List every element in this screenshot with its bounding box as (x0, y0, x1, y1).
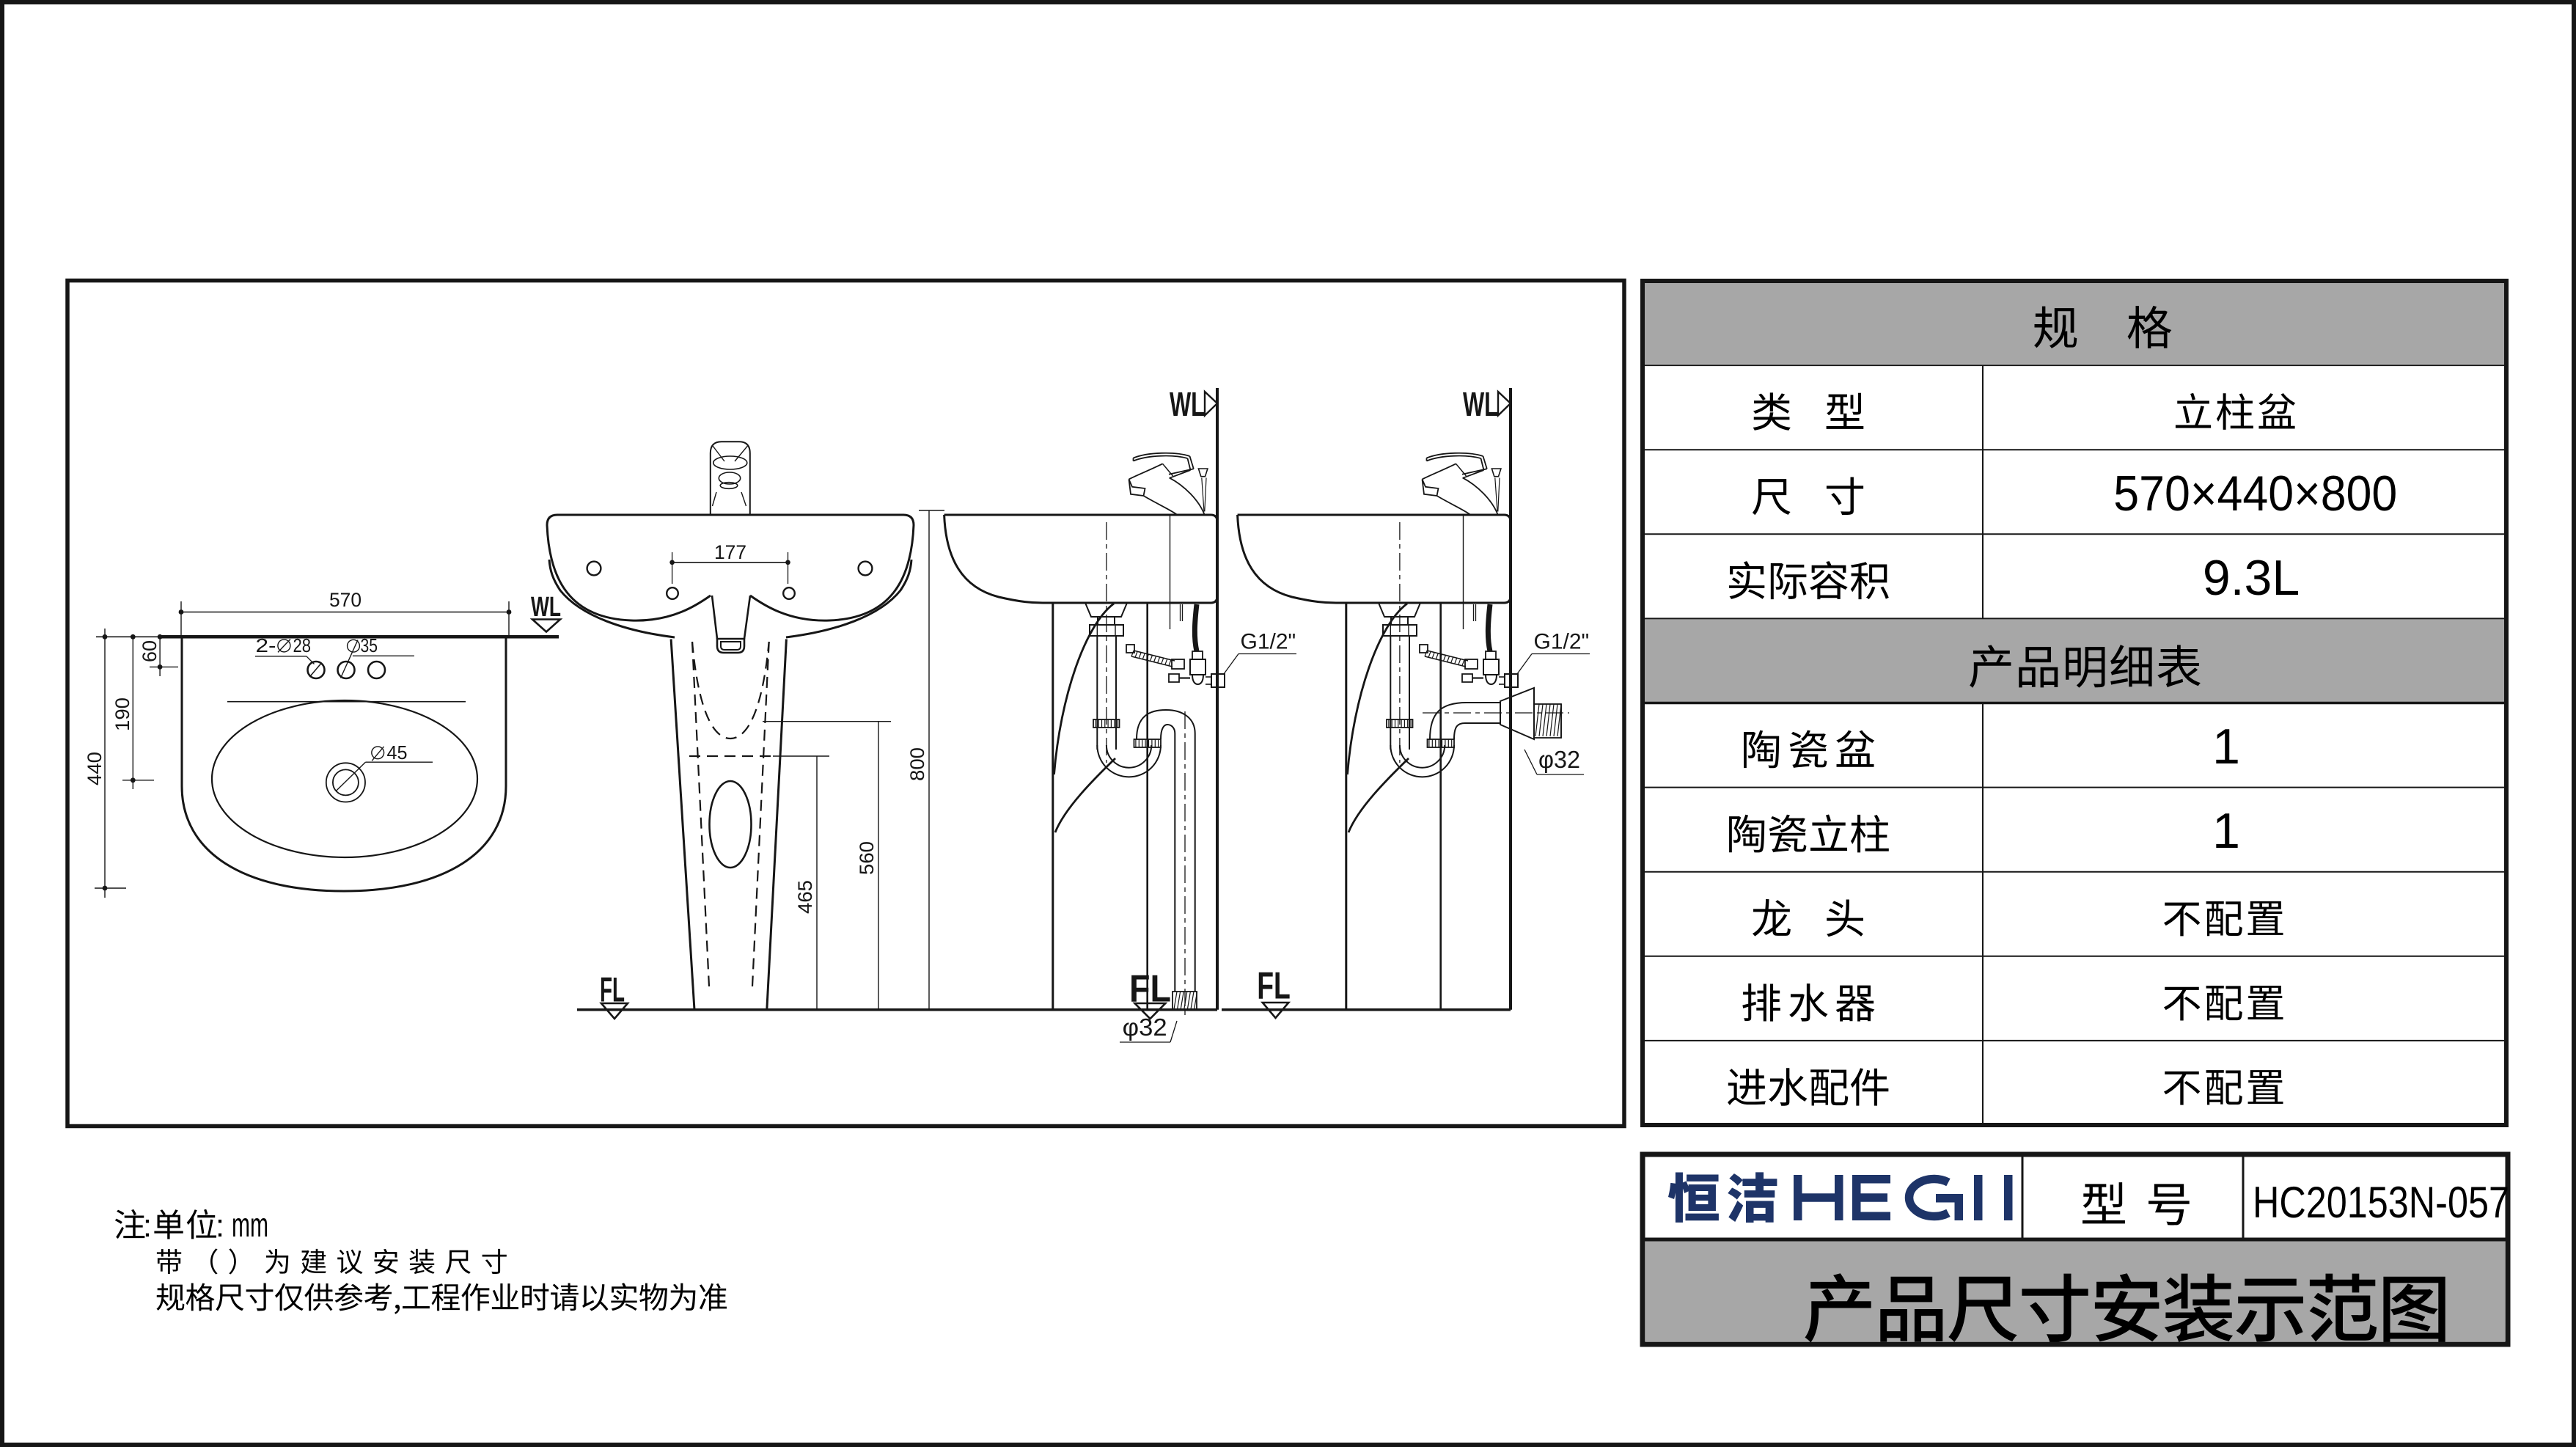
svg-text:WL: WL (531, 592, 561, 623)
svg-text:465: 465 (794, 880, 816, 914)
svg-text:45: 45 (387, 741, 408, 763)
svg-text:35: 35 (361, 634, 378, 656)
svg-text:1: 1 (2212, 803, 2240, 859)
svg-text:G1/2": G1/2" (1534, 630, 1590, 654)
svg-text:G1/2": G1/2" (1241, 630, 1296, 654)
svg-text:9.3L: 9.3L (2203, 550, 2300, 606)
svg-text::: : (143, 1208, 152, 1244)
svg-text:φ32: φ32 (1123, 1014, 1167, 1041)
svg-text:HC20153N-057: HC20153N-057 (2253, 1178, 2509, 1227)
svg-text:φ32: φ32 (1538, 746, 1580, 773)
svg-text:28: 28 (293, 634, 312, 656)
svg-text:570×440×800: 570×440×800 (2113, 466, 2397, 521)
svg-text:570: 570 (329, 589, 362, 611)
svg-text:60: 60 (139, 640, 161, 662)
svg-text:WL: WL (1170, 385, 1205, 423)
svg-text:440: 440 (84, 752, 106, 785)
svg-text:2-: 2- (256, 634, 276, 656)
svg-text:1: 1 (2212, 719, 2240, 774)
svg-text:190: 190 (111, 697, 133, 731)
svg-text:FL: FL (1257, 965, 1291, 1008)
svg-text::: : (216, 1208, 224, 1244)
svg-text:mm: mm (232, 1206, 268, 1244)
svg-text:177: 177 (714, 541, 746, 563)
svg-text:800: 800 (906, 747, 928, 781)
svg-text:WL: WL (1463, 385, 1498, 423)
svg-text:560: 560 (856, 841, 878, 875)
